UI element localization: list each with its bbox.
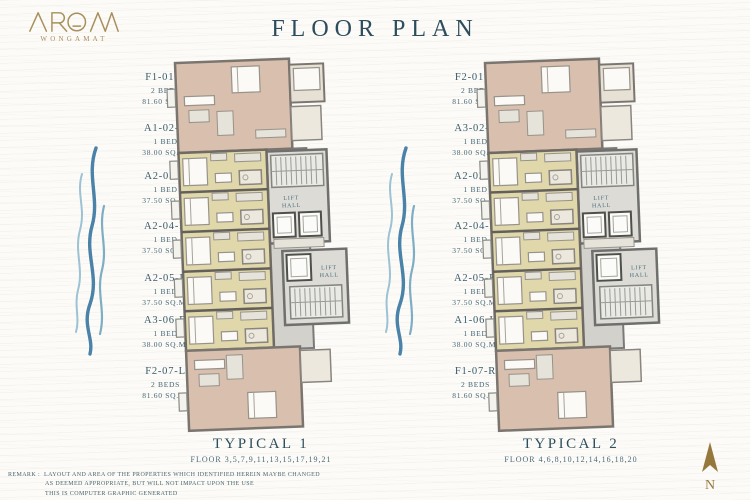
remark-line-2: AS DEEMED APPROPRIATE, BUT WILL NOT IMPA…: [8, 480, 348, 489]
remark-disclaimer: REMARK : LAYOUT AND AREA OF THE PROPERTI…: [8, 471, 348, 499]
plan-floors: FLOOR 4,6,8,10,12,14,16,18,20: [471, 455, 671, 464]
plan-name: TYPICAL 1: [161, 436, 361, 453]
remark-line-1: LAYOUT AND AREA OF THE PROPERTIES WHICH …: [44, 471, 320, 480]
wave-decoration-left: [66, 146, 112, 356]
floor-plan-typical-2: [476, 56, 666, 434]
floor-plan-page: LIFT HALL LIFT HALL: [0, 0, 750, 500]
caption-typical-1: TYPICAL 1 FLOOR 3,5,7,9,11,13,15,17,19,2…: [161, 436, 361, 464]
remark-label: REMARK :: [8, 471, 40, 480]
page-title: FLOOR PLAN: [0, 16, 750, 43]
north-arrow-icon: [699, 442, 721, 474]
wave-decoration-right: [376, 146, 422, 356]
plan-floors: FLOOR 3,5,7,9,11,13,15,17,19,21: [161, 455, 361, 464]
plan-name: TYPICAL 2: [471, 436, 671, 453]
north-label: N: [692, 479, 728, 493]
remark-line-3: THIS IS COMPUTER GRAPHIC GENERATED: [8, 490, 348, 499]
floor-plan-typical-1: [166, 56, 356, 434]
north-compass: N: [692, 442, 728, 493]
caption-typical-2: TYPICAL 2 FLOOR 4,6,8,10,12,14,16,18,20: [471, 436, 671, 464]
